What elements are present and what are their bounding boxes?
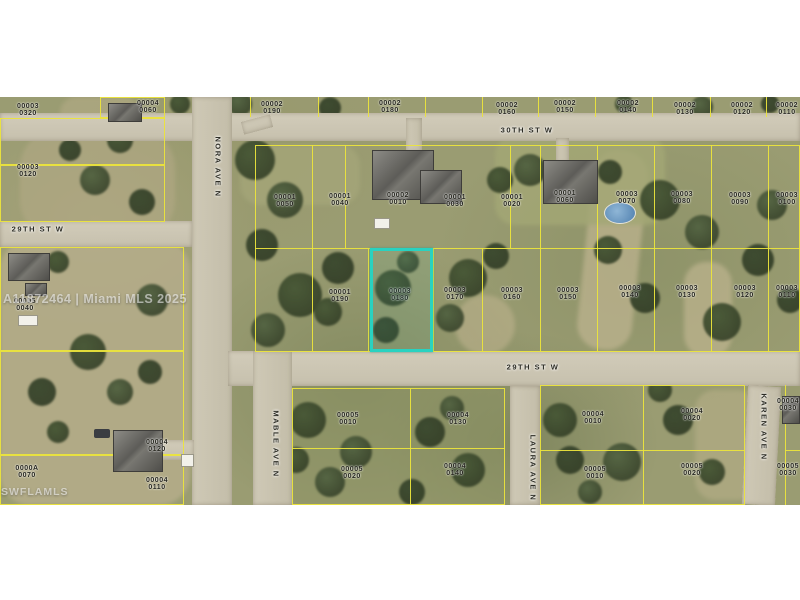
- tree-canopy: [685, 215, 719, 249]
- parcel-label: 00004 0010: [582, 411, 604, 425]
- parcel-label: 00005 0010: [337, 412, 359, 426]
- street-label-nora-ave-n: NORA AVE N: [214, 137, 223, 198]
- parcel-label: 00003 0170: [444, 287, 466, 301]
- parcel-boundary-line: [433, 248, 434, 352]
- tree-canopy: [603, 443, 641, 481]
- road-nora-ave-n: [192, 97, 232, 505]
- terrain-patch: [455, 295, 515, 355]
- tree-canopy: [47, 251, 69, 273]
- parcel-label: 00004 0130: [447, 412, 469, 426]
- parcel-label: 00005 0020: [681, 463, 703, 477]
- parcel-label: 00003 0120: [17, 164, 39, 178]
- parcel-label: 00004 0140: [444, 463, 466, 477]
- tree-canopy: [251, 313, 285, 347]
- tree-canopy: [107, 379, 133, 405]
- parcel-label: 00002 0120: [731, 102, 753, 116]
- parcel-boundary-line: [540, 248, 541, 352]
- parcel-label: 00005 0030: [777, 463, 799, 477]
- parcel-label: 00003 0130: [676, 285, 698, 299]
- tree-canopy: [399, 479, 425, 505]
- shed: [18, 315, 38, 326]
- tree-canopy: [514, 154, 546, 186]
- parcel-label: 00001 0030: [444, 194, 466, 208]
- tree-canopy: [129, 189, 155, 215]
- shed: [181, 454, 194, 467]
- parcel-label: 00003 0160: [501, 287, 523, 301]
- tree-canopy: [742, 244, 774, 276]
- parcel-label: 00002 0190: [261, 101, 283, 115]
- tree-canopy: [415, 417, 445, 447]
- parcel-label: 00003 0100: [776, 192, 798, 206]
- parcel-label: 00002 0180: [379, 100, 401, 114]
- parcel-boundary-line: [368, 248, 369, 352]
- tree-canopy: [28, 378, 56, 406]
- parcel-label: 00002 0010: [387, 192, 409, 206]
- parcel-label: 00002 0130: [674, 102, 696, 116]
- mls-watermark: A11872464 | Miami MLS 2025: [3, 292, 187, 306]
- tree-canopy: [487, 167, 513, 193]
- parcel-label: 00003 0140: [619, 285, 641, 299]
- highlighted-parcel-boundary: [370, 248, 433, 352]
- parcel-label: 00003 0120: [734, 285, 756, 299]
- parked-car: [94, 429, 110, 438]
- shed: [374, 218, 390, 229]
- swfl-mls-watermark: SWFLAMLS: [1, 486, 69, 498]
- parcel-label: 00003 0090: [729, 192, 751, 206]
- parcel-label: 00005 0020: [341, 466, 363, 480]
- parcel-label: 00001 0040: [329, 193, 351, 207]
- street-label-mable-ave-n: MABLE AVE N: [272, 410, 281, 477]
- mls-listing-photo-page: { "image": {"kind": "aerial-parcel-map",…: [0, 0, 800, 600]
- parcel-label: 0000A 0070: [15, 465, 38, 479]
- parcel-label: 00004 0030: [777, 398, 799, 412]
- parcel-label: 00002 0110: [776, 102, 798, 116]
- tree-canopy: [246, 229, 278, 261]
- parcel-label: 00002 0150: [554, 100, 576, 114]
- parcel-label: 00003 0110: [776, 285, 798, 299]
- parcel-label: 00004 0110: [146, 477, 168, 491]
- parcel-label: 00003 0150: [557, 287, 579, 301]
- street-label-29th-st-w: 29TH ST W: [507, 363, 560, 372]
- tree-canopy: [70, 334, 106, 370]
- parcel-label: 00003 0080: [671, 191, 693, 205]
- tree-canopy: [436, 304, 464, 332]
- tree-canopy: [290, 402, 326, 438]
- street-label-30th-st-w: 30TH ST W: [501, 126, 554, 135]
- tree-canopy: [322, 252, 354, 284]
- street-label-karen-ave-n: KAREN AVE N: [760, 393, 769, 460]
- tree-canopy: [59, 139, 81, 161]
- street-label-laura-ave-n: LAURA AVE N: [529, 435, 538, 502]
- parcel-label: 00002 0160: [496, 102, 518, 116]
- tree-canopy: [594, 236, 622, 264]
- parcel-label: 00002 0140: [617, 100, 639, 114]
- tree-canopy: [703, 303, 741, 341]
- parcel-boundary-line: [643, 385, 644, 505]
- parcel-label: 00003 0070: [616, 191, 638, 205]
- tree-canopy: [340, 436, 372, 468]
- tree-canopy: [235, 140, 275, 180]
- parcel-label: 00004 0020: [681, 408, 703, 422]
- aerial-map-image: 30TH ST W29TH ST W29TH ST WNORA AVE NMAB…: [0, 97, 800, 505]
- house-roof: [8, 253, 50, 281]
- parcel-label: 00004 0120: [146, 439, 168, 453]
- tree-canopy: [556, 446, 584, 474]
- driveway: [406, 118, 422, 152]
- parcel-label: 00001 0050: [274, 194, 296, 208]
- tree-canopy: [80, 165, 110, 195]
- parcel-label: 00001 0190: [329, 289, 351, 303]
- top-white-band: [0, 0, 800, 97]
- parcel-label: 00003 0320: [17, 103, 39, 117]
- tree-canopy: [483, 243, 509, 269]
- parcel-label: 00001 0020: [501, 194, 523, 208]
- tree-canopy: [170, 97, 190, 114]
- parcel-label: 00005 0010: [584, 466, 606, 480]
- tree-canopy: [578, 480, 602, 504]
- tree-canopy: [47, 421, 69, 443]
- tree-canopy: [543, 403, 577, 437]
- parcel-label: 00001 0060: [554, 190, 576, 204]
- parcel-label: 00004 0060: [137, 100, 159, 114]
- street-label-29th-st-w: 29TH ST W: [12, 225, 65, 234]
- swimming-pool: [604, 202, 636, 224]
- tree-canopy: [138, 360, 162, 384]
- parcel-boundary-line: [255, 248, 800, 249]
- tree-canopy: [598, 160, 622, 184]
- bottom-white-band: [0, 505, 800, 600]
- parcel-boundary-line: [785, 450, 800, 451]
